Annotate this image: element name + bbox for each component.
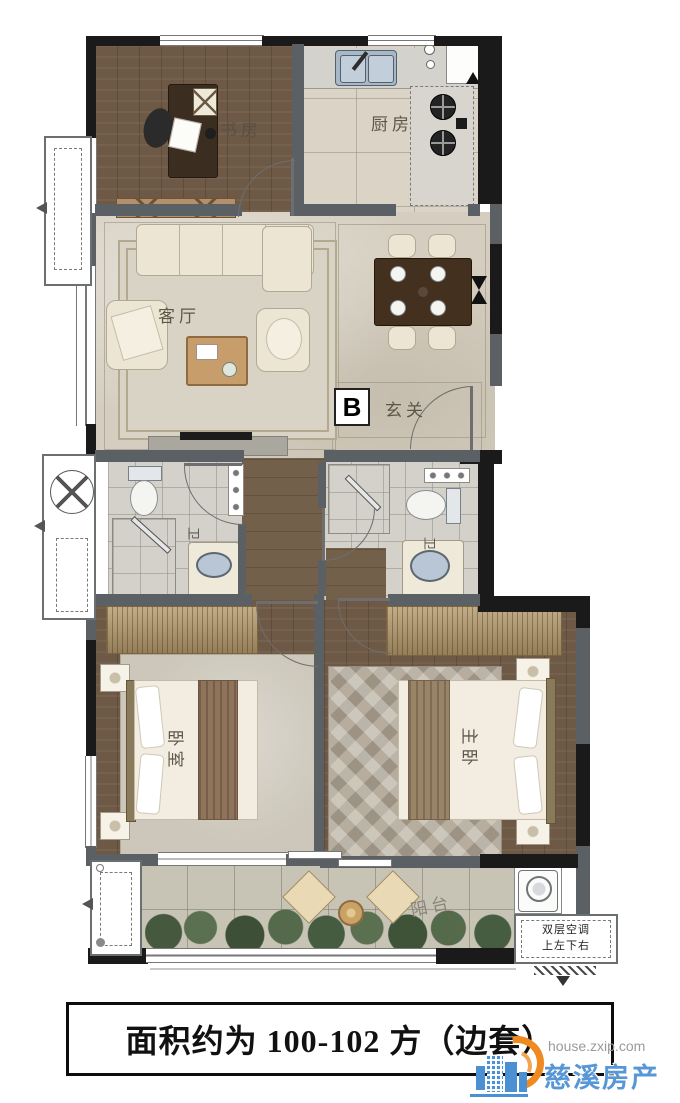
plate [390, 266, 406, 282]
bed-blanket [408, 680, 450, 820]
unit-badge: B [334, 388, 370, 426]
table-tray [196, 344, 218, 360]
kitchen-knob [426, 60, 435, 69]
wall-segment [304, 204, 396, 216]
wall-segment [576, 744, 590, 848]
dining-table [374, 258, 472, 326]
wall-segment [480, 854, 578, 868]
bedroom-wardrobe [106, 606, 258, 654]
watermark-url: house.zxip.com [548, 1038, 645, 1054]
watermark-underline [470, 1094, 528, 1097]
stove-burner [430, 130, 456, 156]
living-label: 客厅 [158, 302, 200, 327]
armchair-cushion [266, 318, 302, 360]
wall-segment [490, 334, 502, 386]
dining-chair [428, 326, 456, 350]
toilet-bowl [130, 480, 158, 516]
dining-chair [428, 234, 456, 258]
drain-arrow-icon [82, 898, 93, 910]
flue-symbol [50, 470, 94, 514]
vanity-sink [410, 550, 450, 582]
sliding-door-panel [288, 851, 342, 859]
nightstand [516, 818, 550, 845]
window [85, 756, 97, 848]
ac-unit-outline [56, 538, 88, 612]
wall-segment [576, 628, 590, 746]
shaft-symbol [471, 276, 487, 290]
bath-shelf [424, 468, 470, 483]
wall-segment [478, 596, 578, 612]
stove-control [456, 118, 467, 129]
master-label: 主卧 [459, 728, 484, 770]
wall-segment [95, 594, 252, 606]
washer-drum [526, 876, 552, 902]
wall-segment [468, 204, 480, 216]
watermark-building-icon [487, 1056, 503, 1092]
toilet-tank [446, 488, 461, 524]
shaft-symbol [471, 290, 487, 304]
wall-segment [478, 460, 494, 602]
pipe-dot [96, 938, 105, 947]
down-triangle-icon [556, 976, 570, 986]
corridor-floor [242, 458, 326, 604]
tv [180, 432, 252, 440]
bath-right-label: 卫 [421, 537, 440, 550]
sink-basin-right [368, 55, 394, 83]
wall-segment [86, 36, 96, 140]
wall-segment [490, 204, 502, 246]
kitchen-label: 厨房 [371, 110, 413, 135]
dining-chair [388, 326, 416, 350]
hatch-strip [534, 966, 596, 975]
wall-segment [434, 36, 480, 46]
watermark-site: 慈溪房产网 [544, 1056, 680, 1103]
wall-segment [95, 204, 242, 216]
bedroom-label: 卧室 [165, 730, 190, 772]
wall-segment [576, 596, 590, 628]
wall-segment [318, 560, 326, 596]
window [368, 35, 436, 46]
ac-note: 双层空调 上左下右 [521, 920, 611, 958]
stove-burner [430, 94, 456, 120]
window-sill-line [150, 968, 516, 970]
balcony-table [338, 900, 364, 926]
wall-segment [262, 36, 370, 46]
desk-plant [205, 128, 216, 139]
entry-label: 玄关 [385, 396, 427, 421]
watermark-building-icon [505, 1062, 517, 1092]
watermark: house.zxip.com 慈溪房产网 [466, 1034, 680, 1103]
bed-headboard [546, 678, 556, 824]
master-wardrobe [386, 606, 562, 656]
vanity-sink [196, 552, 232, 578]
window [158, 852, 288, 866]
floor-plan-image: 双层空调 上左下右 书房 厨房 客厅 玄关 B 卫 卫 卧室 主卧 阳台 面积约… [0, 0, 680, 1103]
ac-unit-outline [54, 148, 82, 270]
pipe-dot [96, 864, 104, 872]
ac-note-line2: 上左下右 [542, 939, 590, 955]
study-label: 书房 [220, 116, 262, 141]
balcony-window [146, 948, 440, 963]
toilet-tank [128, 466, 162, 481]
drain-arrow-icon [36, 202, 47, 214]
ac-unit-outline [100, 872, 132, 946]
bath-left-label: 卫 [185, 527, 204, 540]
dining-chair [388, 234, 416, 258]
wall-segment [238, 524, 246, 600]
watermark-building-icon [519, 1072, 527, 1092]
bay-window [76, 266, 96, 426]
ac-note-line1: 双层空调 [542, 923, 590, 939]
wall-segment [86, 640, 96, 758]
wall-segment [324, 450, 480, 462]
table-plant [222, 362, 237, 377]
sofa-chaise [262, 226, 312, 292]
plate [430, 266, 446, 282]
wall-segment [490, 244, 502, 336]
wall-segment [318, 462, 326, 508]
plate [430, 300, 446, 316]
window [160, 35, 264, 46]
toilet-bowl [406, 490, 446, 520]
wall-segment [388, 594, 480, 606]
wall-segment [576, 846, 590, 916]
plate [390, 300, 406, 316]
desk-shelf [193, 88, 217, 116]
drain-arrow-icon [34, 520, 45, 532]
wall-segment [478, 36, 502, 204]
wall-segment [88, 36, 162, 46]
sliding-door-panel [338, 859, 392, 867]
bed-blanket [198, 680, 238, 820]
watermark-building-icon [476, 1066, 485, 1090]
wall-segment [436, 948, 518, 964]
wall-segment [95, 450, 244, 462]
